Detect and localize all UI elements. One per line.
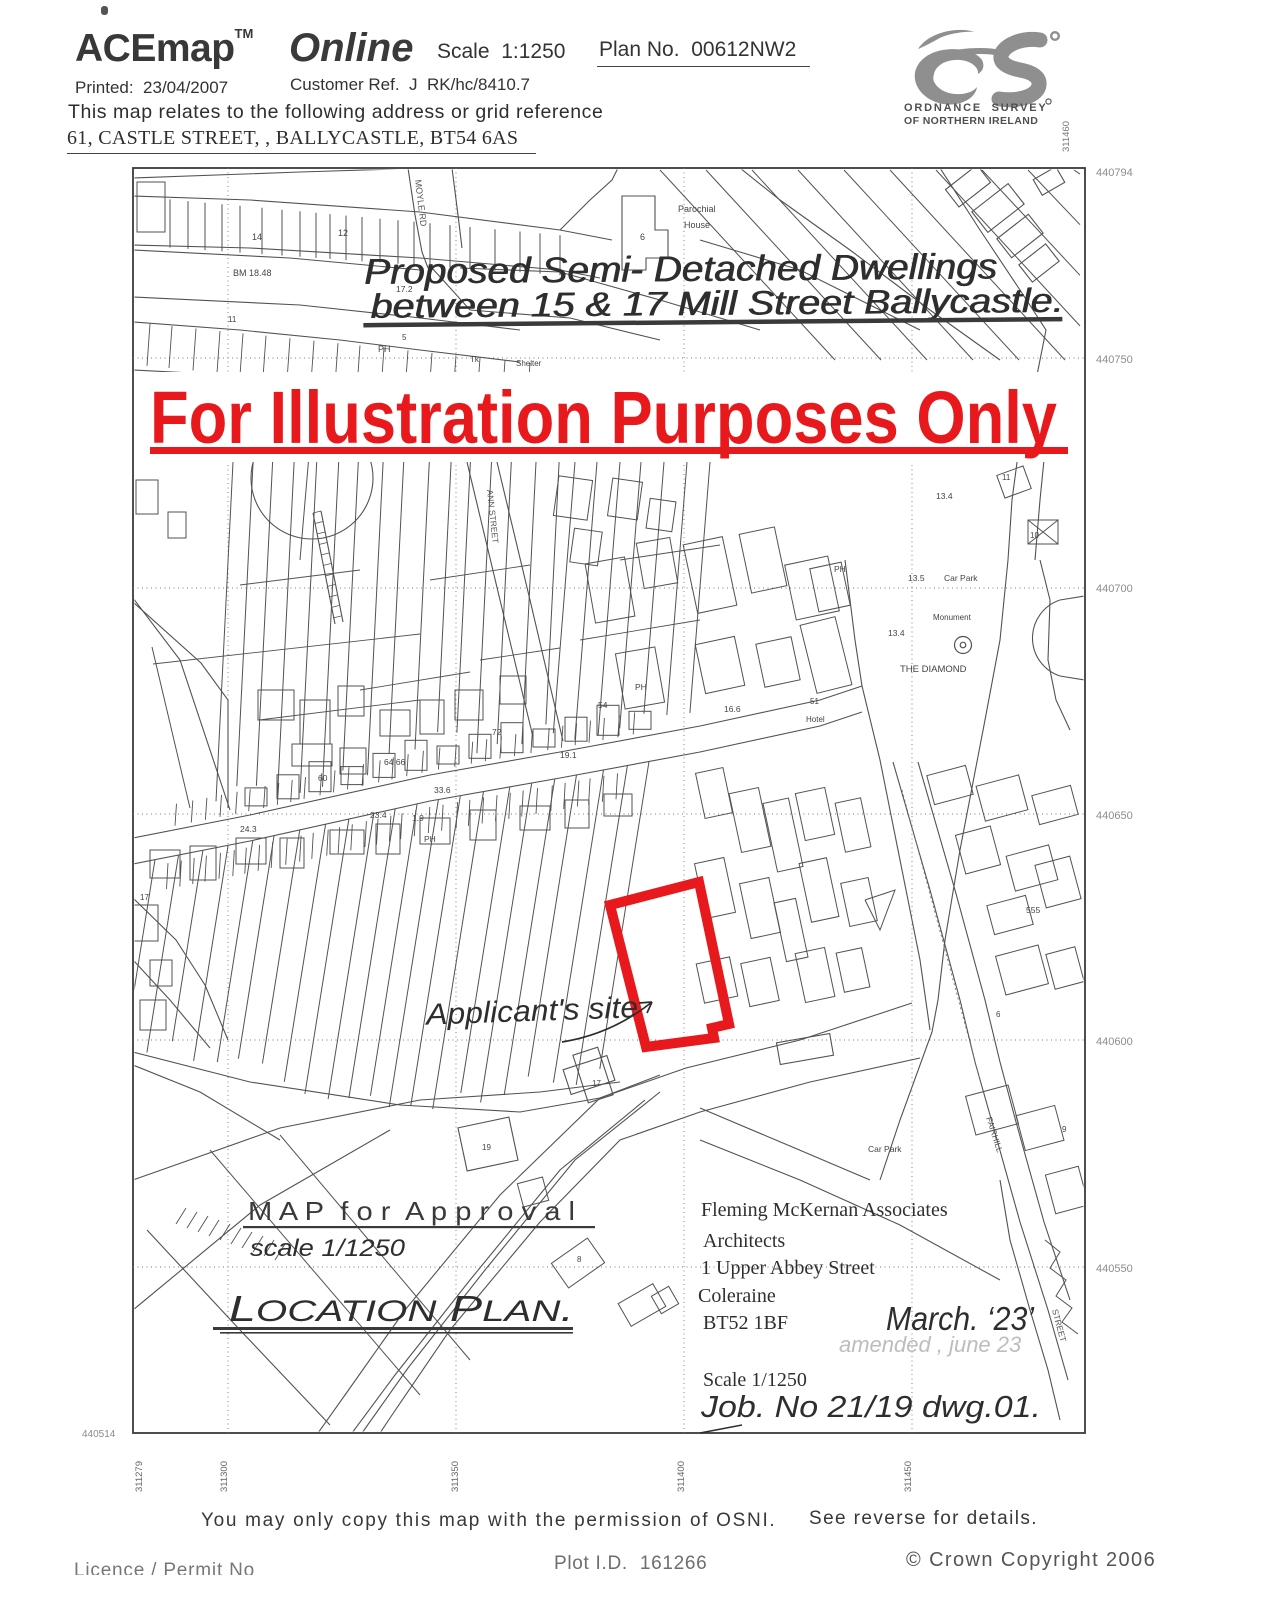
svg-text:11: 11 xyxy=(1002,473,1011,482)
svg-text:17: 17 xyxy=(140,893,149,902)
svg-text:Shelter: Shelter xyxy=(516,359,542,368)
svg-text:24.3: 24.3 xyxy=(240,824,257,834)
svg-text:440700: 440700 xyxy=(1096,583,1133,595)
svg-text:PH: PH xyxy=(834,564,846,574)
svg-text:555: 555 xyxy=(1026,905,1040,915)
svg-text:13.5: 13.5 xyxy=(908,573,925,583)
svg-text:Hotel: Hotel xyxy=(806,715,825,724)
svg-text:10: 10 xyxy=(1030,531,1039,540)
svg-text:13.4: 13.4 xyxy=(936,491,953,501)
svg-text:19.1: 19.1 xyxy=(560,750,577,760)
svg-text:BM 18.48: BM 18.48 xyxy=(233,268,272,278)
svg-text:13.4: 13.4 xyxy=(888,628,905,638)
svg-text:64 66: 64 66 xyxy=(384,757,406,767)
svg-text:6: 6 xyxy=(996,1010,1001,1019)
svg-text:33.6: 33.6 xyxy=(434,785,451,795)
svg-text:Car Park: Car Park xyxy=(868,1144,902,1154)
svg-text:440650: 440650 xyxy=(1096,810,1133,822)
svg-text:Tk: Tk xyxy=(470,355,480,364)
svg-text:440794: 440794 xyxy=(1096,167,1133,179)
svg-text:9: 9 xyxy=(1062,1125,1067,1134)
svg-text:54: 54 xyxy=(598,700,608,710)
svg-text:311450: 311450 xyxy=(903,1461,914,1492)
svg-text:M A P f o r A p p r o v a l: M A P f o r A p p r o v a l xyxy=(248,1196,575,1226)
svg-text:PH: PH xyxy=(378,344,391,354)
svg-text:311279: 311279 xyxy=(134,1461,145,1492)
svg-text:LOCATION PLAN.: LOCATION PLAN. xyxy=(229,1288,574,1329)
svg-text:12: 12 xyxy=(338,228,348,238)
svg-text:BT52 1BF: BT52 1BF xyxy=(703,1312,788,1334)
svg-text:Fleming McKernan Associates: Fleming McKernan Associates xyxy=(701,1199,948,1221)
svg-text:440514: 440514 xyxy=(82,1429,116,1440)
svg-text:311460: 311460 xyxy=(1061,121,1072,152)
svg-text:Monument: Monument xyxy=(933,613,972,622)
svg-text:6: 6 xyxy=(640,232,645,242)
svg-text:Car Park: Car Park xyxy=(944,573,978,583)
svg-text:THE DIAMOND: THE DIAMOND xyxy=(900,664,967,675)
svg-text:311300: 311300 xyxy=(219,1461,230,1492)
svg-text:5: 5 xyxy=(402,333,407,342)
svg-text:17: 17 xyxy=(592,1079,601,1088)
svg-text:311400: 311400 xyxy=(676,1461,687,1492)
svg-text:amended , june 23: amended , june 23 xyxy=(839,1332,1022,1357)
svg-text:Job. No 21/19 dwg.01.: Job. No 21/19 dwg.01. xyxy=(700,1389,1041,1424)
svg-text:For Illustration Purposes Only: For Illustration Purposes Only xyxy=(150,376,1057,459)
svg-text:Scale 1/1250: Scale 1/1250 xyxy=(703,1369,807,1391)
svg-text:440600: 440600 xyxy=(1096,1036,1133,1048)
svg-text:11: 11 xyxy=(228,315,237,324)
svg-text:440750: 440750 xyxy=(1096,354,1133,366)
svg-text:FAIRHILL: FAIRHILL xyxy=(984,1116,1005,1154)
svg-text:8: 8 xyxy=(577,1255,582,1264)
svg-text:House: House xyxy=(684,220,710,230)
svg-text:14: 14 xyxy=(252,232,262,242)
svg-text:scale 1/1250: scale 1/1250 xyxy=(250,1235,406,1262)
svg-text:PH: PH xyxy=(424,834,436,844)
svg-text:Architects: Architects xyxy=(703,1230,785,1252)
svg-text:60: 60 xyxy=(318,773,328,783)
svg-text:Parochial: Parochial xyxy=(678,204,716,214)
svg-text:Coleraine: Coleraine xyxy=(698,1285,776,1307)
svg-text:19: 19 xyxy=(482,1143,491,1152)
svg-text:MOYLE RD: MOYLE RD xyxy=(413,179,429,227)
svg-text:1 Upper Abbey Street: 1 Upper Abbey Street xyxy=(701,1257,875,1279)
svg-text:PH: PH xyxy=(635,682,647,692)
svg-text:16.6: 16.6 xyxy=(724,704,741,714)
svg-text:51: 51 xyxy=(810,697,819,706)
svg-text:72: 72 xyxy=(492,727,502,737)
svg-text:311350: 311350 xyxy=(450,1461,461,1492)
svg-text:440550: 440550 xyxy=(1096,1263,1133,1275)
